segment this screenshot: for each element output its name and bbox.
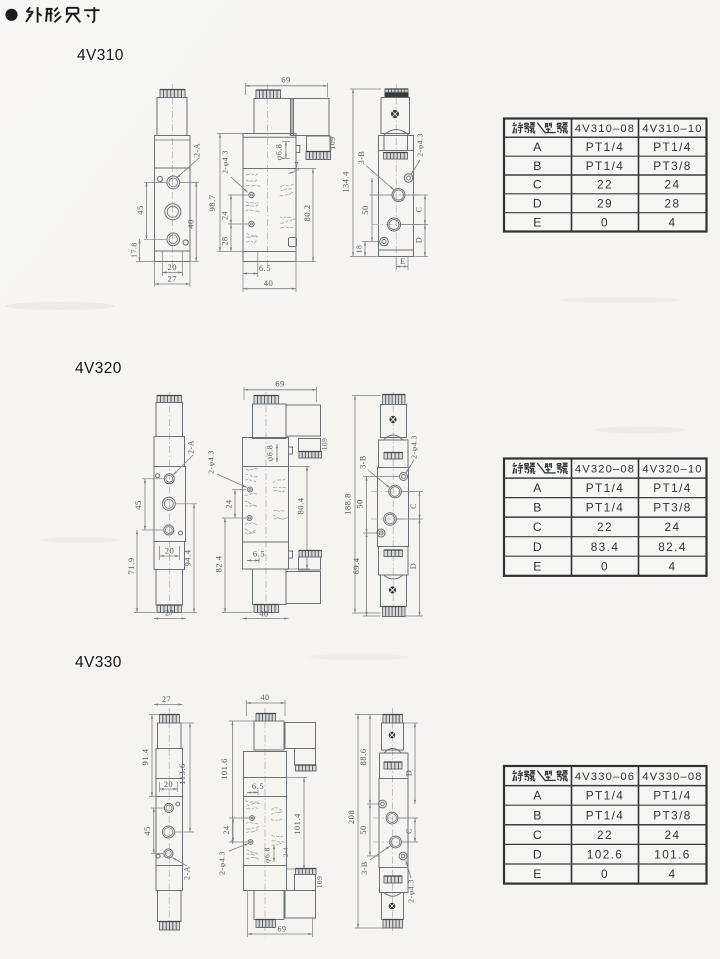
svg-text:20: 20 xyxy=(164,780,173,789)
svg-text:24: 24 xyxy=(665,178,681,192)
svg-text:2-φ4.3: 2-φ4.3 xyxy=(218,851,227,875)
svg-text:φ6.8: φ6.8 xyxy=(266,445,275,462)
svg-text:4V320–08: 4V320–08 xyxy=(575,464,635,476)
svg-text:A: A xyxy=(533,481,542,495)
svg-text:50: 50 xyxy=(358,825,368,835)
svg-text:2-φ4.3: 2-φ4.3 xyxy=(410,435,419,459)
svg-text:82.4: 82.4 xyxy=(658,540,687,554)
svg-text:40: 40 xyxy=(260,610,269,619)
svg-text:C: C xyxy=(405,828,414,834)
svg-text:101.6: 101.6 xyxy=(219,758,229,780)
svg-text:0: 0 xyxy=(601,867,609,881)
svg-text:40: 40 xyxy=(261,693,270,702)
svg-text:50: 50 xyxy=(354,499,364,509)
svg-text:20: 20 xyxy=(168,262,178,272)
svg-text:C: C xyxy=(533,828,543,842)
svg-text:PT1/4: PT1/4 xyxy=(653,140,691,154)
svg-text:71.9: 71.9 xyxy=(126,557,136,574)
svg-text:28: 28 xyxy=(665,197,681,211)
svg-text:82.4: 82.4 xyxy=(213,555,223,572)
svg-text:45: 45 xyxy=(135,205,145,215)
svg-text:188.8: 188.8 xyxy=(342,493,352,515)
svg-text:C: C xyxy=(414,207,423,213)
svg-text:3-B: 3-B xyxy=(358,455,367,469)
svg-text:C: C xyxy=(533,520,543,534)
svg-text:2-A: 2-A xyxy=(193,143,202,157)
svg-text:27: 27 xyxy=(162,695,171,704)
svg-text:2-φ4.3: 2-φ4.3 xyxy=(220,150,229,174)
svg-text:PT1/4: PT1/4 xyxy=(586,501,624,515)
svg-text:PT1/4: PT1/4 xyxy=(653,789,691,803)
svg-text:2-A: 2-A xyxy=(187,440,196,454)
svg-text:18: 18 xyxy=(355,245,364,254)
svg-text:17.8: 17.8 xyxy=(129,242,138,258)
svg-text:24: 24 xyxy=(665,520,681,534)
svg-text:28: 28 xyxy=(220,237,229,246)
svg-text:6.5: 6.5 xyxy=(253,549,265,559)
svg-text:2-4: 2-4 xyxy=(283,847,290,857)
svg-text:2-φ4.3: 2-φ4.3 xyxy=(416,133,425,157)
svg-text:6.5: 6.5 xyxy=(252,781,264,791)
svg-text:E: E xyxy=(533,867,542,881)
svg-text:3-B: 3-B xyxy=(360,861,369,875)
svg-text:4: 4 xyxy=(669,559,677,573)
svg-text:24: 24 xyxy=(665,828,681,842)
svg-text:24: 24 xyxy=(221,211,230,220)
svg-text:2-φ4.3: 2-φ4.3 xyxy=(207,450,216,474)
svg-text:20: 20 xyxy=(165,546,175,556)
svg-text:98.7: 98.7 xyxy=(207,194,217,211)
svg-text:B: B xyxy=(533,159,542,173)
svg-text:69: 69 xyxy=(278,925,287,934)
svg-text:27: 27 xyxy=(168,274,178,284)
svg-text:φ6.8: φ6.8 xyxy=(263,847,272,863)
svg-text:PT3/8: PT3/8 xyxy=(653,501,691,515)
svg-text:E: E xyxy=(533,559,542,573)
svg-text:PT1/4: PT1/4 xyxy=(586,808,624,822)
svg-text:φ6.8: φ6.8 xyxy=(275,144,284,161)
svg-text:109: 109 xyxy=(320,438,329,451)
svg-text:C: C xyxy=(409,503,418,509)
svg-text:88.6: 88.6 xyxy=(358,748,368,765)
svg-text:45: 45 xyxy=(142,826,152,836)
svg-text:2-A: 2-A xyxy=(183,866,192,880)
svg-text:B: B xyxy=(533,808,542,822)
svg-text:22: 22 xyxy=(597,520,613,534)
svg-text:40: 40 xyxy=(185,219,195,229)
svg-text:4V310–08: 4V310–08 xyxy=(575,123,635,135)
svg-text:24: 24 xyxy=(222,826,231,835)
svg-text:PT1/4: PT1/4 xyxy=(586,140,624,154)
svg-text:E: E xyxy=(533,215,542,229)
svg-text:80.4: 80.4 xyxy=(296,497,306,514)
svg-text:D: D xyxy=(409,563,418,569)
svg-text:22: 22 xyxy=(597,178,613,192)
svg-text:4V310–10: 4V310–10 xyxy=(642,123,702,135)
svg-text:D: D xyxy=(414,237,423,243)
svg-text:PT1/4: PT1/4 xyxy=(586,481,624,495)
svg-text:50: 50 xyxy=(360,205,370,215)
svg-text:PT1/4: PT1/4 xyxy=(586,789,624,803)
svg-text:45: 45 xyxy=(133,500,143,510)
svg-text:6.5: 6.5 xyxy=(259,263,271,273)
svg-text:69.4: 69.4 xyxy=(351,557,361,574)
svg-text:0: 0 xyxy=(601,215,609,229)
svg-text:D: D xyxy=(533,197,543,211)
svg-text:101.4: 101.4 xyxy=(292,813,302,835)
svg-text:4V320: 4V320 xyxy=(75,360,122,377)
svg-text:4V330–08: 4V330–08 xyxy=(642,771,702,783)
svg-text:E: E xyxy=(400,257,405,266)
svg-text:2-φ4.3: 2-φ4.3 xyxy=(407,879,416,903)
svg-text:101.6: 101.6 xyxy=(654,848,691,862)
svg-text:134.4: 134.4 xyxy=(341,171,351,193)
svg-text:91.4: 91.4 xyxy=(140,748,150,765)
svg-text:4: 4 xyxy=(669,215,677,229)
svg-text:69: 69 xyxy=(275,379,285,389)
svg-text:113.6: 113.6 xyxy=(177,763,187,785)
svg-text:4V330–06: 4V330–06 xyxy=(575,771,635,783)
svg-text:40: 40 xyxy=(264,278,274,288)
svg-text:B: B xyxy=(533,501,542,515)
svg-text:29: 29 xyxy=(597,197,613,211)
svg-text:0: 0 xyxy=(601,559,609,573)
svg-text:208: 208 xyxy=(346,810,356,824)
svg-text:D: D xyxy=(533,848,543,862)
svg-text:4V320–10: 4V320–10 xyxy=(642,464,702,476)
svg-text:22: 22 xyxy=(597,828,613,842)
svg-text:PT3/8: PT3/8 xyxy=(653,808,691,822)
svg-text:PT1/4: PT1/4 xyxy=(586,159,624,173)
svg-text:27: 27 xyxy=(165,609,174,618)
svg-text:109: 109 xyxy=(328,137,337,150)
svg-text:2-4: 2-4 xyxy=(294,161,301,171)
svg-text:3-B: 3-B xyxy=(357,151,366,165)
svg-text:D: D xyxy=(405,770,414,776)
svg-text:A: A xyxy=(533,789,542,803)
svg-text:4: 4 xyxy=(669,867,677,881)
svg-text:94.4: 94.4 xyxy=(183,549,193,566)
svg-text:4V330: 4V330 xyxy=(75,654,122,671)
svg-text:83.4: 83.4 xyxy=(591,540,620,554)
svg-text:102.6: 102.6 xyxy=(587,848,624,862)
svg-text:109: 109 xyxy=(315,876,324,889)
svg-text:PT1/4: PT1/4 xyxy=(653,481,691,495)
svg-text:C: C xyxy=(533,178,543,192)
svg-text:4V310: 4V310 xyxy=(77,47,124,64)
svg-text:24: 24 xyxy=(225,500,234,509)
svg-text:80.2: 80.2 xyxy=(302,204,312,221)
svg-text:PT3/8: PT3/8 xyxy=(653,159,691,173)
svg-text:69: 69 xyxy=(281,75,291,85)
svg-text:D: D xyxy=(533,540,543,554)
svg-text:A: A xyxy=(533,140,542,154)
